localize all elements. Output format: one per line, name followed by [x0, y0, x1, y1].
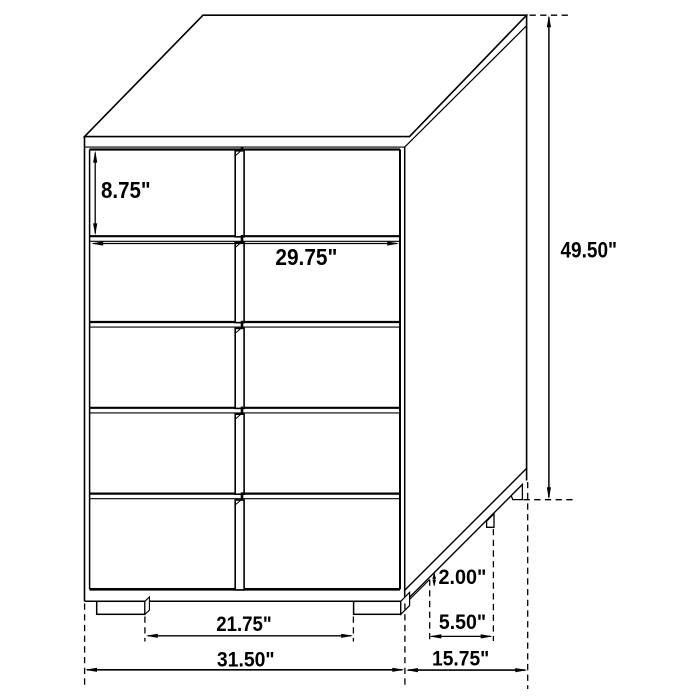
svg-text:5.50": 5.50": [439, 611, 486, 634]
svg-text:21.75": 21.75": [216, 613, 271, 636]
svg-text:15.75": 15.75": [432, 647, 489, 670]
svg-text:29.75": 29.75": [275, 244, 337, 270]
svg-text:2.00": 2.00": [439, 566, 487, 589]
svg-text:31.50": 31.50": [217, 648, 275, 671]
svg-text:49.50": 49.50": [561, 238, 618, 263]
svg-text:8.75": 8.75": [101, 177, 151, 203]
